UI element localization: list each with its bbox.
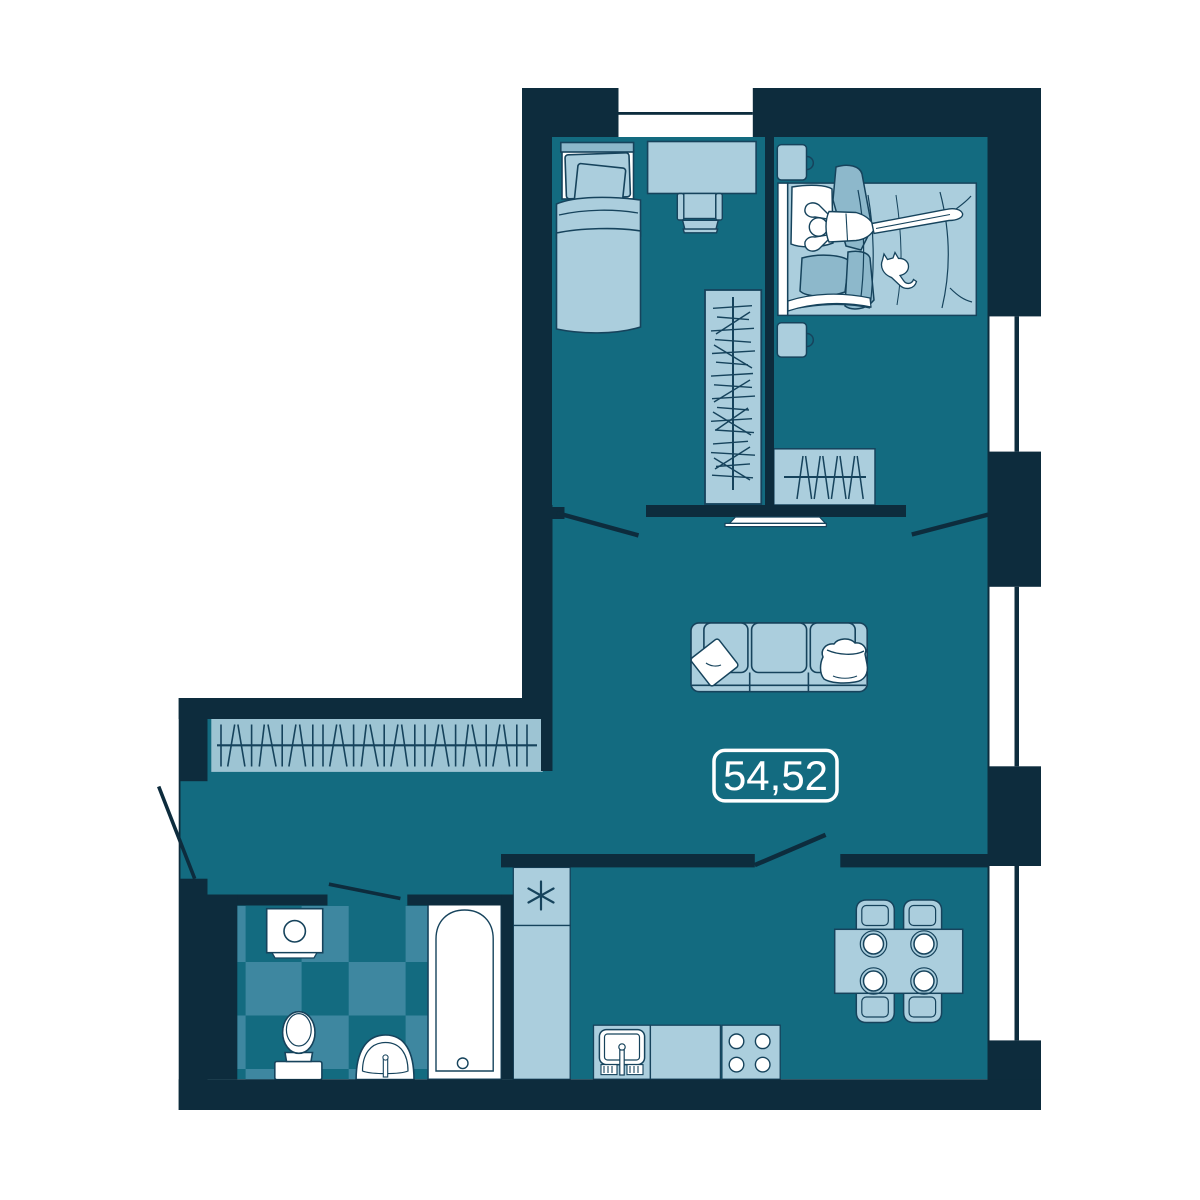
svg-text:54,52: 54,52 [723, 752, 828, 799]
